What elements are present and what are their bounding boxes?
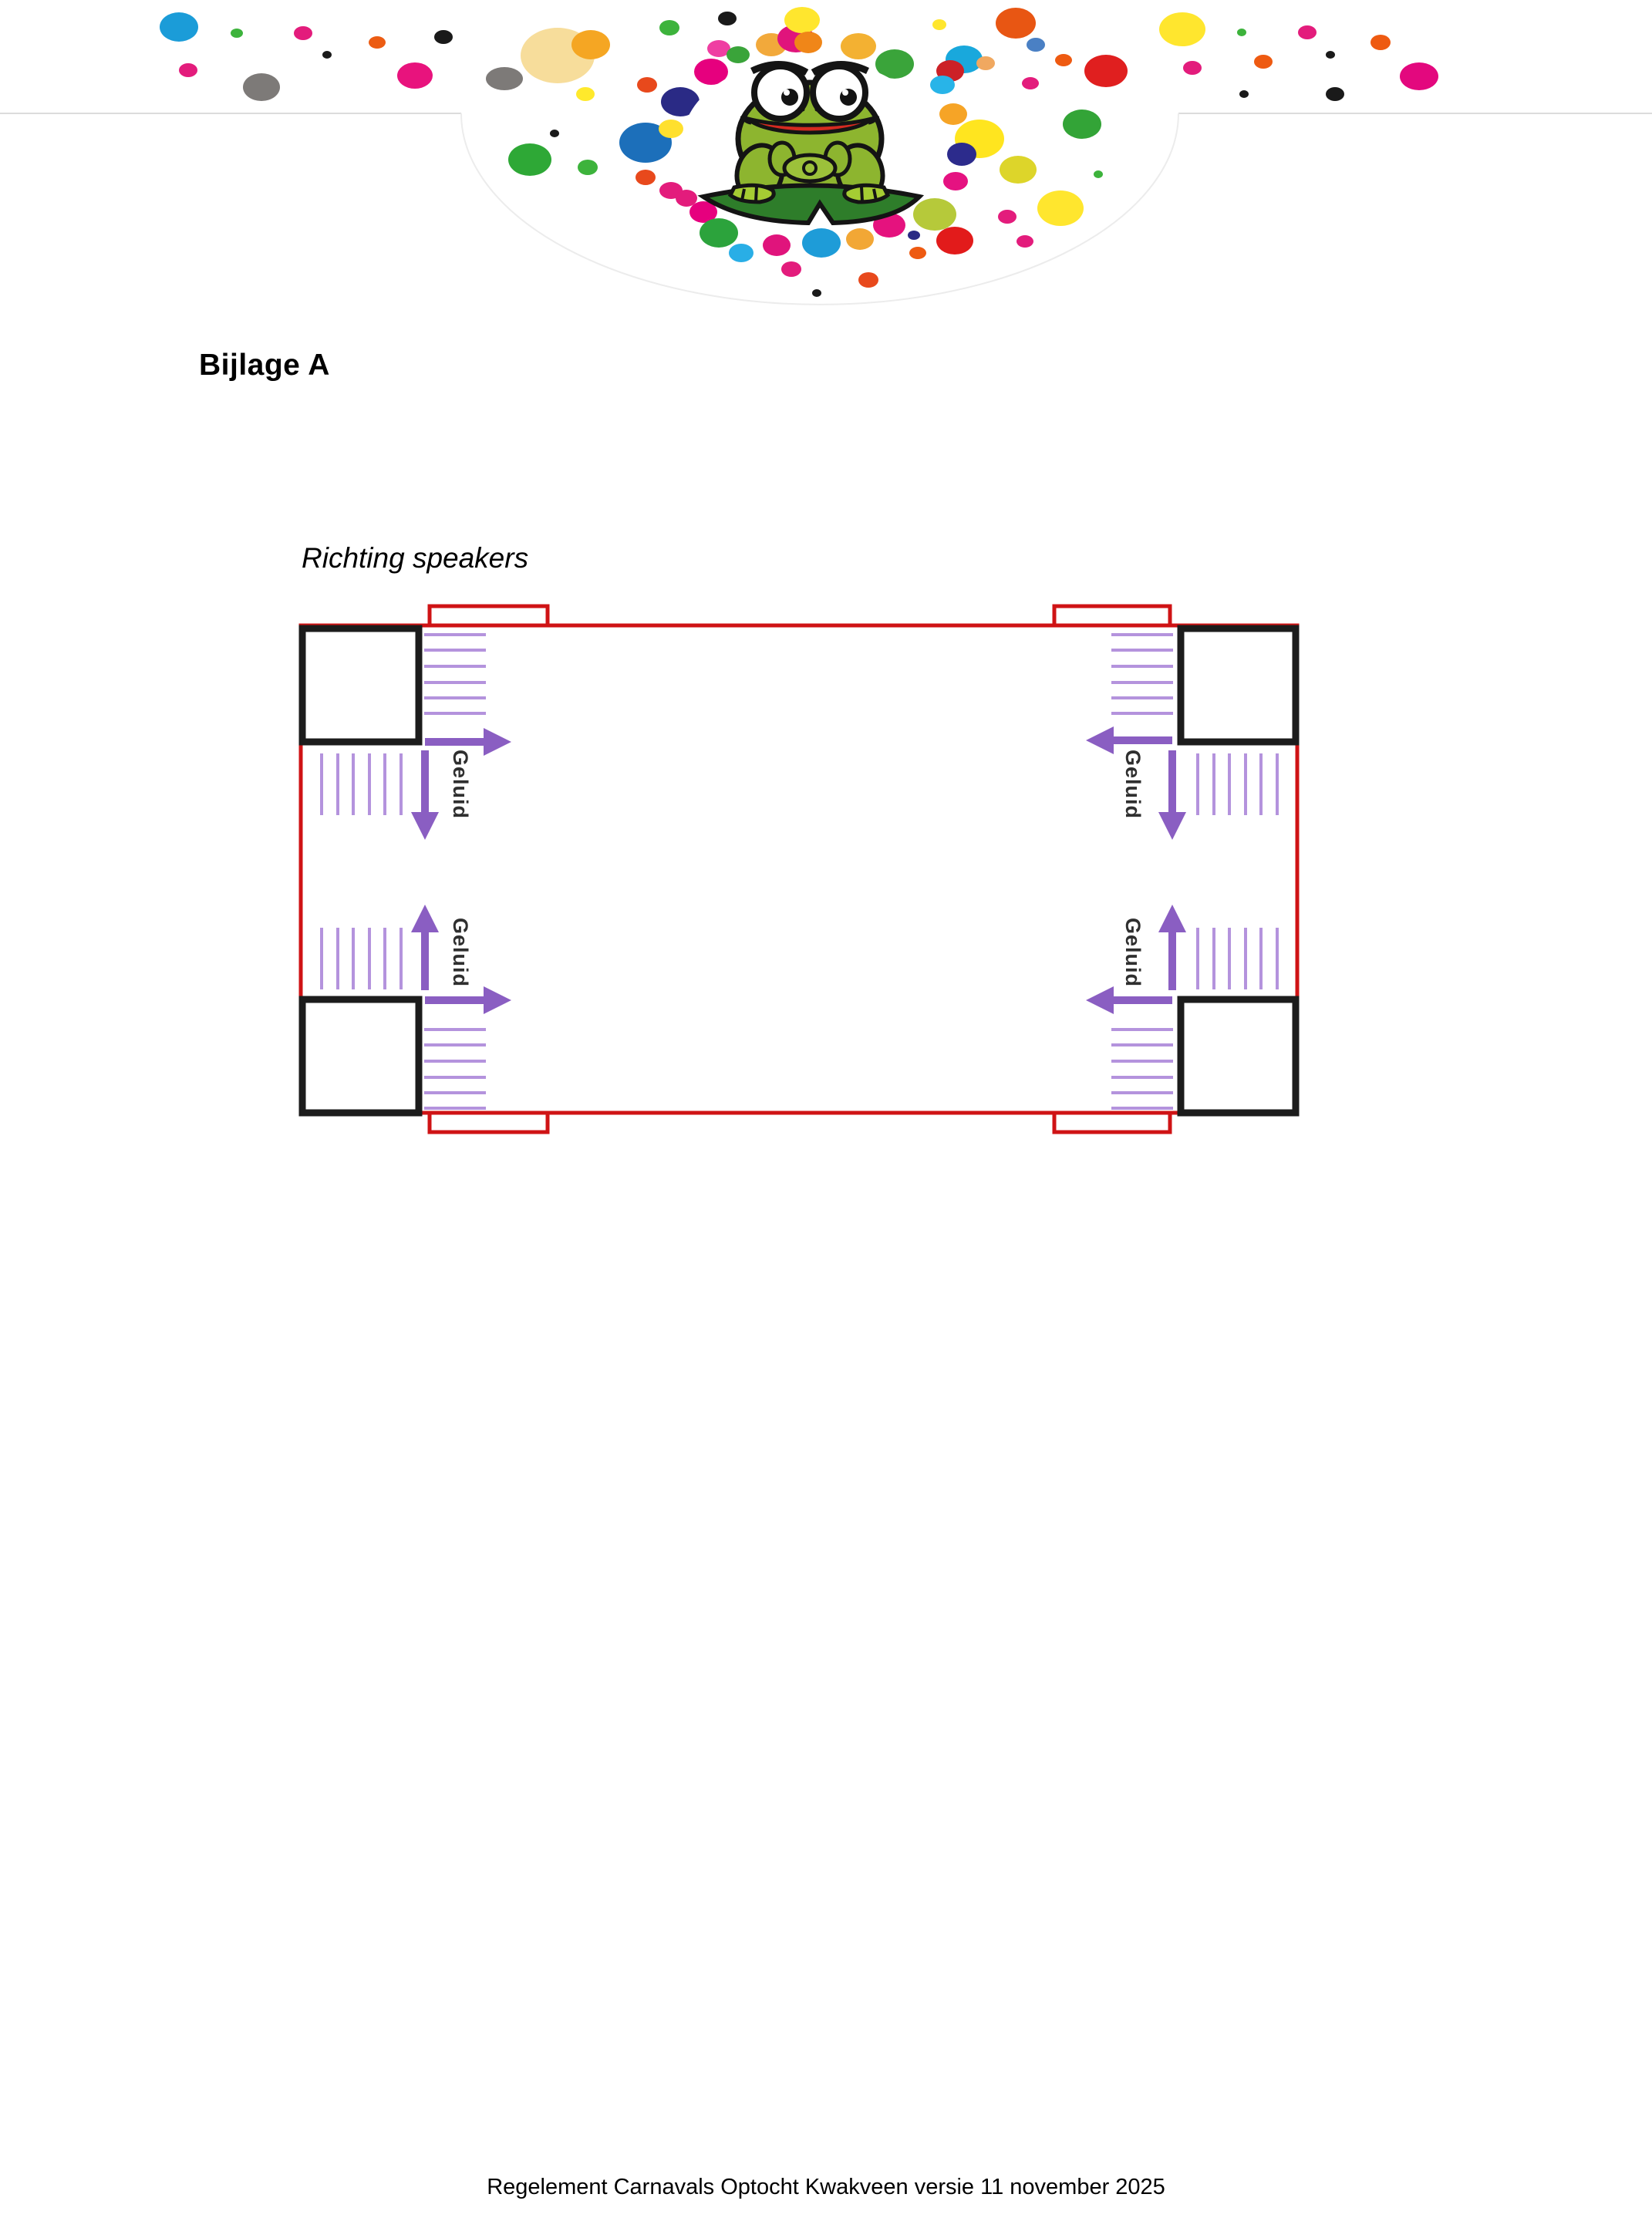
confetti-dot — [976, 56, 995, 70]
sound-arrow-head — [1086, 726, 1114, 754]
confetti-dot — [1326, 51, 1335, 59]
sound-arrows — [411, 726, 1186, 1014]
confetti-dot — [1037, 190, 1084, 226]
confetti-dot — [858, 272, 878, 288]
confetti-dot — [1027, 38, 1045, 52]
confetti-dot — [434, 30, 453, 44]
confetti-dot — [1159, 12, 1205, 46]
confetti-dot — [1183, 61, 1202, 75]
confetti-dot — [369, 36, 386, 49]
confetti-dot — [1400, 62, 1438, 90]
page-title: Bijlage A — [199, 349, 330, 383]
confetti-dot — [781, 261, 801, 277]
confetti-dot — [1000, 156, 1037, 184]
confetti-dot — [936, 227, 973, 254]
header-banner — [0, 0, 1652, 332]
confetti-dot — [322, 51, 332, 59]
confetti-dot — [700, 218, 738, 248]
confetti-dot — [659, 20, 679, 35]
sound-arrow-head — [1158, 812, 1186, 840]
confetti-dot — [636, 170, 656, 185]
geluid-label-top-left: Geluid — [449, 750, 472, 819]
speaker-box-bottom-right — [1181, 999, 1296, 1113]
frog-glint-right — [842, 89, 848, 96]
confetti-dot — [802, 228, 841, 258]
confetti-dot — [729, 244, 754, 262]
confetti-dot — [763, 234, 791, 256]
frog-nostril-right — [815, 108, 819, 112]
confetti-dot — [1084, 55, 1128, 87]
sound-arrow-head — [411, 812, 439, 840]
sound-arrow-head — [484, 986, 511, 1014]
confetti-dot — [996, 8, 1036, 39]
confetti-dot — [571, 30, 610, 59]
confetti-dot — [508, 143, 551, 176]
sound-arrow-head — [484, 728, 511, 756]
frog-foot-left — [730, 185, 774, 202]
confetti-dot — [179, 63, 197, 77]
sound-arrow-head — [1086, 986, 1114, 1014]
confetti-dot — [1094, 170, 1103, 178]
confetti-dot — [1016, 235, 1033, 248]
confetti-dot — [943, 172, 968, 190]
confetti-dot — [908, 231, 920, 240]
hatch-lines — [322, 635, 1277, 1108]
confetti-dot — [550, 130, 559, 137]
speaker-box-top-left — [302, 629, 419, 742]
float-tab-top-right — [1054, 606, 1170, 625]
confetti-dot — [637, 77, 657, 93]
confetti-dot — [1055, 54, 1072, 66]
confetti-dot — [160, 12, 198, 42]
confetti-dot — [1022, 77, 1039, 89]
frog-logo — [683, 59, 934, 224]
confetti-dot — [998, 210, 1016, 224]
sound-arrow-head — [1158, 905, 1186, 932]
confetti-dot — [486, 67, 523, 90]
confetti-dot — [794, 32, 822, 53]
confetti-dot — [676, 190, 697, 207]
confetti-dot — [1063, 110, 1101, 139]
document-page: Bijlage A Richting speakers Geluid Gelui… — [0, 0, 1652, 2221]
confetti-dot — [727, 46, 750, 63]
confetti-dot — [659, 120, 683, 138]
confetti-dot — [576, 87, 595, 101]
geluid-label-top-right: Geluid — [1121, 750, 1145, 819]
confetti-dot — [932, 19, 946, 30]
confetti-dot — [812, 289, 821, 297]
confetti-dot — [243, 73, 280, 101]
geluid-label-bottom-left: Geluid — [449, 918, 472, 987]
confetti-dot — [846, 228, 874, 250]
speaker-direction-diagram: Geluid Geluid Geluid Geluid — [262, 594, 1373, 1164]
confetti-dot — [1254, 55, 1273, 69]
float-tab-bottom-right — [1054, 1113, 1170, 1132]
sound-arrow-head — [411, 905, 439, 932]
footer-text: Regelement Carnavals Optocht Kwakveen ve… — [0, 2175, 1652, 2200]
confetti-dot — [909, 247, 926, 259]
confetti-dot — [1298, 25, 1317, 39]
confetti-dot — [841, 33, 876, 59]
confetti-dot — [1326, 87, 1344, 101]
frog-pupil-right — [840, 89, 857, 106]
geluid-label-bottom-right: Geluid — [1121, 918, 1145, 987]
frog-glint-left — [784, 89, 790, 96]
float-tab-top-left — [430, 606, 548, 625]
confetti-dot — [1239, 90, 1249, 98]
diagram-caption: Richting speakers — [302, 542, 528, 575]
frog-eye-right — [813, 66, 865, 119]
confetti-dot — [784, 7, 820, 33]
confetti-dot — [578, 160, 598, 175]
float-tab-bottom-left — [430, 1113, 548, 1132]
frog-arms — [784, 155, 835, 181]
confetti-dot — [397, 62, 433, 89]
confetti-dot — [231, 29, 243, 38]
frog-eye-left — [754, 66, 807, 119]
confetti-dot — [930, 76, 955, 94]
frog-nostril-left — [801, 108, 805, 112]
frog-pupil-left — [781, 89, 798, 106]
speaker-box-bottom-left — [302, 999, 419, 1113]
confetti-dot — [1370, 35, 1391, 50]
confetti-dot — [913, 198, 956, 231]
confetti-dot — [947, 143, 976, 166]
confetti-dot — [939, 103, 967, 125]
frog-foot-right — [845, 185, 888, 202]
confetti-dot — [718, 12, 737, 25]
speaker-box-top-right — [1181, 629, 1296, 742]
confetti-dot — [294, 26, 312, 40]
confetti-dot — [1237, 29, 1246, 36]
